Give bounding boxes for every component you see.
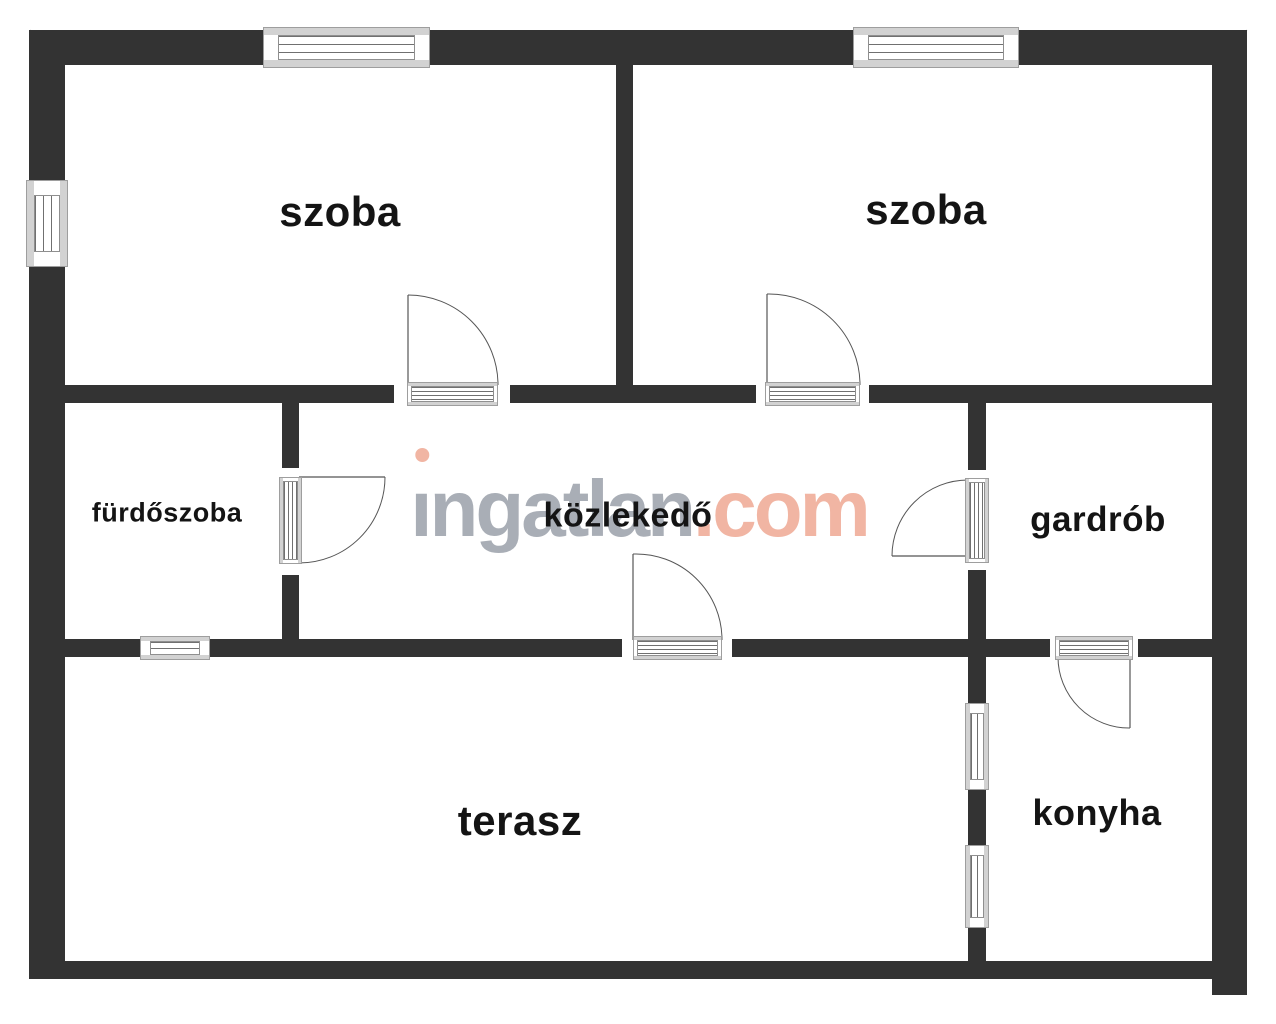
wall-segment bbox=[282, 575, 299, 639]
door-symbol bbox=[1058, 657, 1130, 728]
window-pane-lines bbox=[150, 641, 200, 655]
door-jamb-lines bbox=[283, 481, 298, 560]
wall-segment bbox=[430, 30, 853, 65]
door-swing-arc bbox=[408, 295, 498, 385]
window-symbol bbox=[853, 27, 1019, 68]
door-swing-arc bbox=[892, 480, 968, 556]
wall-segment bbox=[65, 639, 140, 657]
door-swing-arc bbox=[1058, 657, 1130, 728]
door-swing-arc bbox=[299, 477, 385, 563]
door-swing-arc bbox=[767, 294, 860, 385]
wall-segment bbox=[29, 961, 1212, 979]
wall-segment bbox=[1212, 30, 1247, 995]
window-symbol bbox=[965, 845, 989, 928]
room-label-terasz: terasz bbox=[458, 797, 582, 845]
door-swing-arc bbox=[633, 554, 722, 640]
wall-segment bbox=[968, 928, 986, 961]
window-sill bbox=[634, 656, 721, 659]
room-label-kozlekedo: közlekedő bbox=[544, 497, 713, 536]
wall-segment bbox=[968, 570, 986, 639]
window-sill bbox=[298, 478, 301, 563]
wall-segment bbox=[732, 639, 1050, 657]
door-symbol bbox=[408, 295, 498, 385]
wall-segment bbox=[869, 385, 1212, 403]
wall-segment bbox=[1138, 639, 1212, 657]
window-sill bbox=[985, 479, 988, 562]
door-threshold bbox=[765, 382, 860, 406]
wall-segment bbox=[616, 65, 633, 385]
window-sill bbox=[984, 846, 988, 927]
window-sill bbox=[408, 402, 497, 405]
window-pane-lines bbox=[970, 855, 984, 918]
door-threshold bbox=[279, 477, 302, 564]
door-symbol bbox=[767, 294, 860, 385]
window-sill bbox=[264, 28, 429, 35]
window-sill bbox=[60, 181, 67, 266]
room-label-szoba-2: szoba bbox=[865, 186, 987, 234]
room-label-gardrob: gardrób bbox=[1030, 500, 1166, 540]
wall-segment bbox=[968, 657, 986, 703]
wall-segment bbox=[65, 385, 394, 403]
wall-segment bbox=[210, 639, 622, 657]
watermark-brand-accent: .com bbox=[693, 464, 868, 553]
window-pane-lines bbox=[34, 195, 60, 252]
door-threshold bbox=[407, 382, 498, 406]
wall-segment bbox=[510, 385, 756, 403]
door-jamb-lines bbox=[969, 482, 985, 559]
window-pane-lines bbox=[278, 35, 415, 60]
watermark-i-dot bbox=[415, 448, 429, 462]
wall-segment bbox=[282, 403, 299, 468]
room-label-furdoszoba: fürdőszoba bbox=[92, 498, 243, 529]
window-sill bbox=[27, 181, 34, 266]
wall-segment bbox=[968, 403, 986, 470]
room-label-konyha: konyha bbox=[1032, 792, 1161, 834]
wall-segment bbox=[29, 267, 65, 979]
floorplan-canvas: ıngatlan.com szobaszobafürdőszobaközleke… bbox=[0, 0, 1276, 1024]
door-threshold bbox=[633, 636, 722, 660]
wall-segment bbox=[29, 30, 65, 180]
window-sill bbox=[141, 655, 209, 659]
door-jamb-lines bbox=[637, 640, 718, 656]
window-sill bbox=[766, 402, 859, 405]
window-symbol bbox=[26, 180, 68, 267]
window-symbol bbox=[263, 27, 430, 68]
window-pane-lines bbox=[868, 35, 1004, 60]
window-sill bbox=[984, 704, 988, 789]
window-sill bbox=[854, 60, 1018, 67]
door-symbol bbox=[299, 477, 385, 563]
window-symbol bbox=[140, 636, 210, 660]
door-symbol bbox=[892, 480, 968, 556]
wall-segment bbox=[968, 790, 986, 845]
door-jamb-lines bbox=[769, 386, 856, 402]
door-jamb-lines bbox=[1059, 640, 1129, 656]
window-pane-lines bbox=[970, 713, 984, 780]
window-sill bbox=[854, 28, 1018, 35]
window-sill bbox=[264, 60, 429, 67]
door-threshold bbox=[1055, 636, 1133, 660]
door-threshold bbox=[965, 478, 989, 563]
door-jamb-lines bbox=[411, 386, 494, 402]
window-sill bbox=[1056, 656, 1132, 659]
window-symbol bbox=[965, 703, 989, 790]
room-label-szoba-1: szoba bbox=[279, 188, 401, 236]
door-symbol bbox=[633, 554, 722, 640]
